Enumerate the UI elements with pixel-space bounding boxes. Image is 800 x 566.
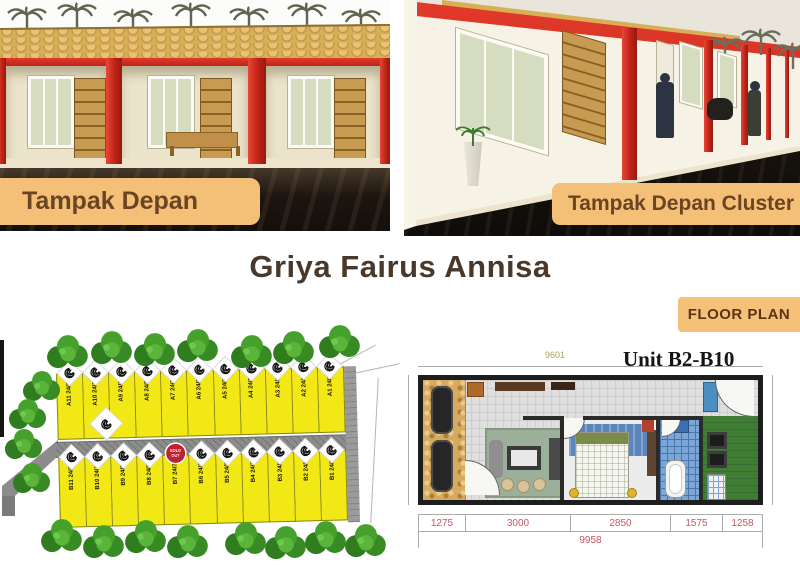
lot-id: A1	[327, 388, 333, 396]
lot-id: B2	[303, 473, 309, 481]
palm-icon	[54, 2, 100, 30]
red-pillar	[741, 45, 748, 145]
kitchen-counter	[707, 432, 727, 449]
lot-b1: B1 24/36	[320, 450, 348, 521]
unit-label: Unit B2-B10	[623, 347, 783, 372]
lot-b3: B3 24/30	[268, 452, 296, 523]
housing-block: A11 24/24A10 24/26A9 24/25A8 24/25A7 24/…	[54, 362, 360, 532]
red-pillar	[0, 58, 6, 164]
tree-icon	[318, 324, 362, 366]
porch-bay	[266, 66, 380, 162]
tree-icon	[264, 525, 308, 566]
house-facade	[0, 66, 390, 162]
wall	[583, 416, 703, 420]
tree-icon	[40, 518, 84, 560]
porch-bay	[6, 66, 106, 162]
tree-icon	[176, 328, 220, 370]
cabinet	[467, 382, 484, 397]
bed-lamp	[569, 488, 579, 498]
wall	[523, 416, 563, 420]
lot-id: A10	[92, 395, 98, 406]
wall	[560, 416, 564, 500]
dimension-cell: 1575	[670, 515, 722, 532]
site-plan: A11 24/24A10 24/26A9 24/25A8 24/25A7 24/…	[2, 318, 404, 566]
kitchen-cabinet	[707, 474, 726, 500]
cluster-view-render: Tampak Depan Cluster	[404, 0, 800, 236]
page-title: Griya Fairus Annisa	[0, 249, 800, 285]
door-icon	[74, 78, 106, 164]
caption-front-view: Tampak Depan	[0, 178, 260, 225]
caption-cluster-view: Tampak Depan Cluster	[552, 183, 800, 225]
dimension-line	[418, 366, 763, 367]
dimension-top: 9601	[545, 350, 565, 360]
tree-icon	[272, 330, 316, 372]
lot-a8: A8 24/25	[135, 371, 163, 438]
lot-id: B6	[199, 476, 205, 484]
dimension-total: 9958	[418, 531, 763, 548]
bed	[575, 432, 629, 498]
kitchen-counter	[707, 451, 727, 468]
lot-a1: A1 24/35	[318, 366, 346, 433]
lot-b6: B6 24/30	[190, 454, 218, 525]
person	[748, 90, 761, 136]
person	[656, 82, 674, 138]
outer-walls	[418, 375, 763, 505]
tree-icon	[166, 524, 210, 566]
lot-id: B4	[251, 474, 257, 482]
motorbike-icon	[431, 440, 453, 492]
lot-a6: A6 24/25	[187, 370, 215, 437]
lot-a2: A2 24/25	[292, 367, 320, 434]
lot-a7: A7 24/25	[161, 370, 189, 437]
window-icon	[288, 76, 334, 148]
lot-id: B7	[173, 476, 179, 484]
dimension-cell: 3000	[465, 515, 570, 532]
door-icon	[562, 30, 606, 145]
lot-b2: B2 24/30	[294, 451, 322, 522]
red-pillar	[785, 50, 789, 138]
door-icon	[334, 78, 366, 164]
dimension-cell: 1258	[722, 515, 763, 532]
plant-pot	[460, 142, 486, 186]
lot-id: A2	[301, 389, 307, 397]
tree-icon	[344, 523, 388, 565]
lot-id: B10	[95, 478, 101, 489]
lot-b8: B8 24/30	[137, 455, 165, 526]
wall	[656, 416, 660, 500]
dimension-cell: 1275	[418, 515, 465, 532]
tree-icon	[224, 521, 268, 563]
lot-id: A7	[171, 392, 177, 400]
edge-artifact	[0, 340, 4, 437]
stool	[533, 478, 546, 491]
wall	[699, 416, 703, 500]
tree-icon	[12, 462, 52, 501]
red-pillar	[106, 58, 122, 164]
window-icon	[680, 42, 702, 109]
front-view-render: Tampak Depan	[0, 0, 390, 231]
lot-id: B9	[121, 478, 127, 486]
lot-a5: A5 24/25	[214, 369, 242, 436]
floor-area	[423, 380, 758, 500]
lot-b9: B9 24/30	[111, 456, 139, 527]
stool	[501, 478, 514, 491]
tree-icon	[90, 330, 134, 372]
tree-icon	[133, 332, 177, 374]
lot-row-b: B11 24/24B10 24/30B9 24/30B8 24/30B7 24/…	[58, 450, 348, 528]
motorbike-icon	[431, 386, 453, 434]
lot-id: A6	[197, 392, 203, 400]
dimension-line	[408, 375, 409, 505]
lot-id: A11	[66, 395, 72, 406]
kitchen-shelf	[495, 382, 545, 391]
lot-a3: A3 24/25	[266, 368, 294, 435]
back-door-arc	[715, 380, 754, 417]
red-pillar	[622, 28, 637, 180]
lot-id: B3	[277, 474, 283, 482]
lot-label: B7 24/30	[164, 459, 190, 484]
red-pillar	[248, 58, 266, 164]
tree-icon	[124, 519, 168, 561]
lot-b10: B10 24/30	[85, 457, 113, 528]
coffee-table	[507, 446, 541, 470]
floor-plan-drawing: Unit B2-B10 9601 3008	[405, 342, 800, 566]
lot-id: B5	[225, 475, 231, 483]
lot-b4: B4 24/30	[242, 452, 270, 523]
bench-legs	[170, 146, 240, 156]
lot-b7: B7 24/30SOLDOUT	[164, 454, 192, 525]
lot-id: B8	[147, 477, 153, 485]
sold-badge-text: OUT	[171, 453, 180, 458]
lot-id: A3	[275, 390, 281, 398]
lot-id: A9	[119, 394, 125, 402]
lot-id: B11	[69, 479, 75, 490]
tree-icon	[82, 524, 126, 566]
lot-id: A4	[249, 390, 255, 398]
dimension-row: 12753000285015751258	[418, 514, 763, 532]
lot-b5: B5 24/30	[216, 453, 244, 524]
lot-id: B1	[329, 472, 335, 480]
toilet	[665, 460, 686, 498]
window-icon	[28, 76, 74, 148]
red-pillar	[380, 58, 390, 164]
lot-id: A8	[145, 393, 151, 401]
carport	[423, 380, 466, 500]
bed-lamp	[627, 488, 637, 498]
motorbike-icon	[707, 98, 733, 120]
dimension-cell: 2850	[570, 515, 670, 532]
wall-cabinet	[551, 382, 575, 390]
stool	[517, 480, 530, 493]
tree-icon	[304, 520, 348, 562]
lot-id: A5	[223, 391, 229, 399]
survey-line	[370, 378, 379, 523]
lot-a4: A4 24/25	[240, 368, 268, 435]
plant-icon	[450, 120, 496, 146]
brochure-page: Tampak Depan Tampak Depan Cluster Griya …	[0, 0, 800, 566]
floor-plan-badge: FLOOR PLAN	[678, 297, 800, 332]
red-pillar	[766, 48, 771, 140]
red-pillar	[704, 40, 713, 152]
dimension-line	[772, 375, 773, 505]
dresser	[642, 420, 654, 432]
tree-icon	[230, 334, 274, 376]
